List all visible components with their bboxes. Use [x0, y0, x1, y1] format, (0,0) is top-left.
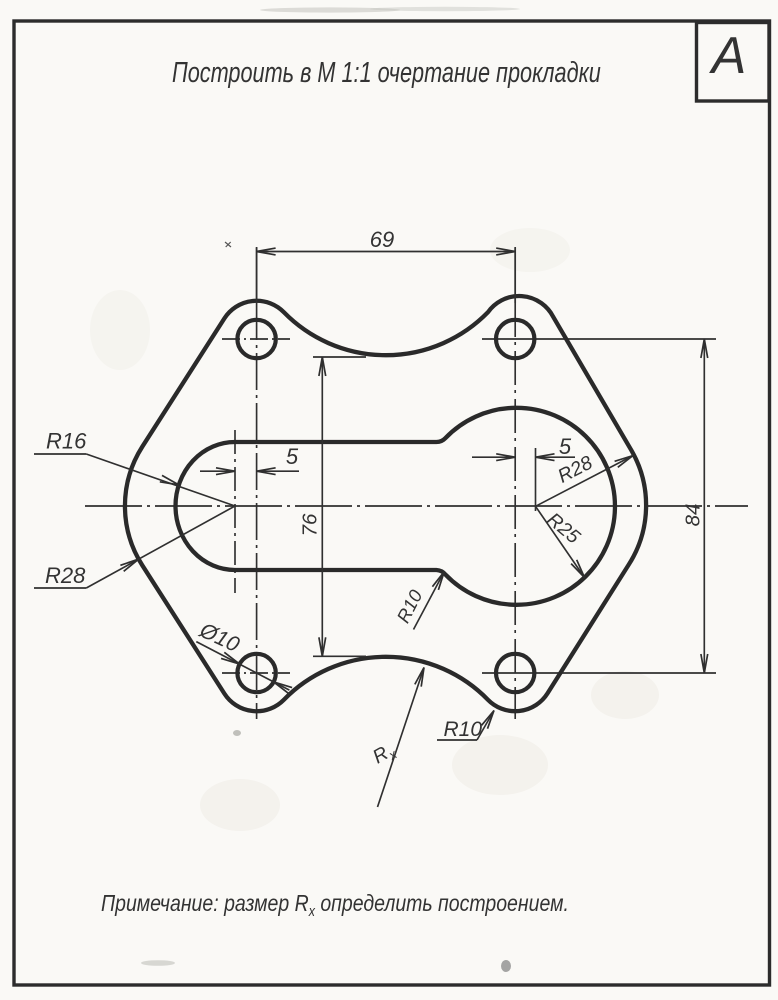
- svg-text:R10: R10: [444, 718, 483, 741]
- svg-text:R16: R16: [46, 429, 87, 454]
- svg-text:84: 84: [682, 504, 705, 527]
- svg-text:R28: R28: [45, 563, 86, 588]
- svg-text:Построить в М 1:1 очертание пр: Построить в М 1:1 очертание прокладки: [172, 57, 601, 89]
- svg-text:R25: R25: [543, 508, 585, 548]
- svg-text:5: 5: [286, 444, 299, 469]
- svg-text:76: 76: [299, 513, 322, 536]
- svg-text:5: 5: [559, 434, 572, 459]
- svg-text:69: 69: [370, 227, 394, 252]
- svg-text:Ø10: Ø10: [195, 618, 243, 657]
- svg-text:Rх: Rх: [369, 738, 400, 770]
- svg-text:А: А: [709, 27, 747, 85]
- svg-text:Примечание: размер Rх определи: Примечание: размер Rх определить построе…: [101, 889, 569, 919]
- svg-text:R10: R10: [392, 586, 426, 626]
